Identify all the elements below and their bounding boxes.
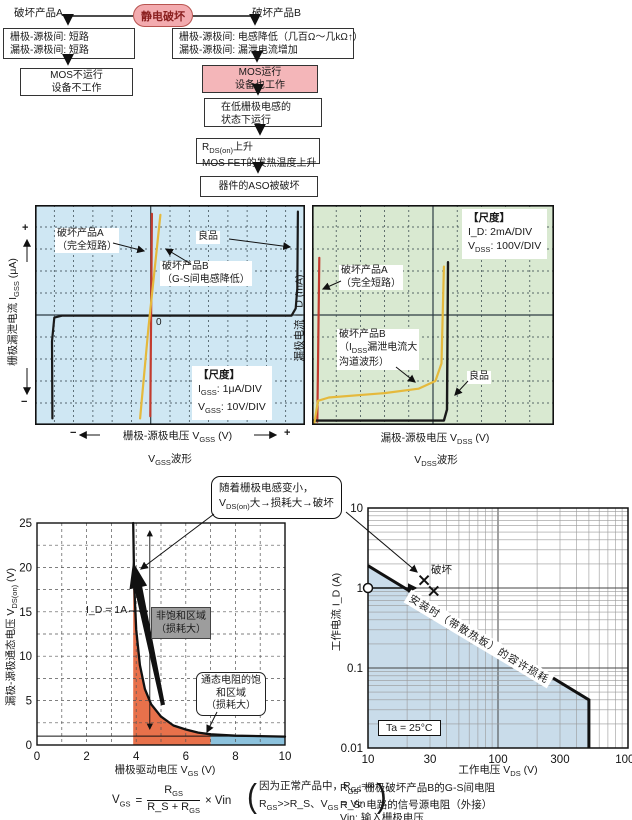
svg-text:0.01: 0.01 — [341, 743, 363, 755]
flow-box-mos-running: MOS运行 设备也工作 — [202, 65, 318, 93]
sat-line3: （损耗大） — [201, 700, 261, 713]
flow-box-rds-rise: RDS(on)上升 MOS FET的发热温度上升 — [196, 138, 320, 164]
vdson-saturation-region-label: 通态电阻的饱 和区域 （损耗大） — [196, 672, 266, 716]
aso-y-axis-label: 工作电流 I_D (A) — [329, 573, 344, 651]
svg-text:10: 10 — [362, 754, 375, 765]
vdss-prod-b-line1: 破坏产品B — [339, 329, 417, 342]
def-rs: R_S: 电路的信号源电阻（外接） — [340, 799, 495, 813]
vgss-label-product-a: 破坏产品A （完全短路） — [55, 228, 119, 253]
svg-text:10: 10 — [350, 503, 363, 515]
vdss-prod-b-line3: 沟道波形） — [339, 357, 417, 370]
vgss-label-product-b: 破坏产品B （G-S间电感降低） — [160, 261, 252, 286]
svg-text:1: 1 — [357, 583, 363, 595]
rds-line2: MOS FET的发热温度上升 — [202, 157, 319, 170]
vdss-scale-line1: I_D: 2mA/DIV — [468, 225, 541, 239]
aso-x-axis-label: 工作电压 VDS (V) — [428, 762, 568, 778]
callout-line2: VDS(on)大→损耗大→破坏 — [219, 496, 334, 515]
svg-text:5: 5 — [26, 696, 32, 708]
unsat-line2: （损耗大） — [156, 623, 206, 636]
vdson-vs-vgs-chart: 02468100510152025 — [8, 515, 300, 765]
lowl-line2: 状态下运行 — [221, 114, 321, 127]
flow-esd-damage-node: 静电破坏 — [133, 4, 193, 27]
svg-text:0.1: 0.1 — [347, 663, 363, 675]
def-rgs: RGS: 栅极破坏产品B的G-S间电阻 — [340, 782, 495, 799]
unsat-line1: 非饱和区域 — [156, 610, 206, 623]
flow-label-product-a: 破坏产品A — [14, 5, 63, 20]
flow-box-a-line2: 漏极-源极间: 短路 — [10, 44, 134, 57]
flow-box-low-inductance: 在低栅极电感的 状态下运行 — [204, 98, 322, 127]
vgss-y-axis-label: 栅极漏泄电流 IGSS (μA) — [5, 258, 21, 366]
flow-box-b-line1: 栅极-源极间: 电感降低（几百Ω～几kΩ↑） — [179, 31, 353, 44]
vdson-unsaturated-region-label: 非饱和区域 （损耗大） — [151, 607, 211, 639]
vgss-scale-box: 【尺度】 IGSS: 1μA/DIV VGSS: 10V/DIV — [192, 366, 272, 420]
sat-line2: 和区域 — [201, 688, 261, 701]
flow-label-product-b: 破坏产品B — [252, 5, 301, 20]
svg-text:0: 0 — [34, 751, 40, 763]
vgss-scale-title: 【尺度】 — [198, 368, 266, 382]
svg-text:25: 25 — [19, 518, 32, 530]
mos-a-line1: MOS不运行 — [21, 69, 132, 82]
vgs-formula: VGS = RGS R_S + RGS × Vin — [112, 784, 231, 817]
vgss-scale-line2: VGSS: 10V/DIV — [198, 400, 266, 418]
vdss-scale-box: 【尺度】 I_D: 2mA/DIV VDSS: 100V/DIV — [462, 209, 547, 259]
flow-box-aso-damaged: 器件的ASO被破坏 — [200, 176, 318, 197]
vdss-scale-title: 【尺度】 — [468, 211, 541, 225]
gate-inductance-callout: 随着栅极电感变小， VDS(on)大→损耗大→破坏 — [211, 476, 342, 519]
vgss-waveform-title: VGSS波形 — [118, 451, 222, 467]
vdson-x-axis-label: 栅极驱动电压 VGS (V) — [80, 762, 250, 778]
connector-trigger-to-b — [193, 16, 255, 24]
svg-text:20: 20 — [19, 562, 32, 574]
flow-box-product-a-symptoms: 栅极-源极间: 短路 漏极-源极间: 短路 — [3, 28, 135, 59]
vgss-label-good: 良品 — [196, 231, 220, 244]
vdss-prod-b-line2: （IDSS漏泄电流大 — [339, 342, 417, 358]
vgss-scale-line1: IGSS: 1μA/DIV — [198, 382, 266, 400]
aso-line: 器件的ASO被破坏 — [201, 180, 317, 193]
callout-line1: 随着栅极电感变小， — [219, 481, 334, 496]
svg-text:1000: 1000 — [615, 754, 632, 765]
vdss-label-product-a: 破坏产品A （完全短路） — [339, 265, 403, 290]
symbol-definitions: RGS: 栅极破坏产品B的G-S间电阻 R_S: 电路的信号源电阻（外接） Vi… — [340, 782, 495, 820]
flow-box-b-line2: 漏极-源极间: 漏泄电流增加 — [179, 44, 353, 57]
vdss-prod-a-line1: 破坏产品A — [341, 265, 401, 278]
lowl-line1: 在低栅极电感的 — [221, 101, 321, 114]
flow-box-product-b-symptoms: 栅极-源极间: 电感降低（几百Ω～几kΩ↑） 漏极-源极间: 漏泄电流增加 — [172, 28, 354, 59]
formula-numerator: RGS — [164, 784, 183, 800]
vdson-curve-label: I_D = 1A — [86, 604, 127, 616]
vdson-y-axis-label: 漏极-源极通态电压 VDS(on) (V) — [3, 568, 19, 706]
vgss-x-axis-label: 栅极-源极电压 VGSS (V) — [100, 428, 255, 444]
vgss-prod-b-line2: （G-S间电感降低） — [162, 274, 250, 287]
formula-fraction: RGS R_S + RGS — [147, 784, 200, 817]
vgss-y-plus-sign: + — [22, 222, 28, 234]
connector-trigger-to-a — [68, 16, 133, 24]
rds-line1: RDS(on)上升 — [202, 141, 319, 157]
svg-text:15: 15 — [19, 607, 32, 619]
formula-rhs: × Vin — [205, 795, 231, 807]
sat-line1: 通态电阻的饱 — [201, 675, 261, 688]
aso-damage-label: 破坏 — [431, 562, 452, 577]
vdss-prod-a-line2: （完全短路） — [341, 278, 401, 291]
vgss-y-minus-sign: − — [21, 396, 27, 408]
formula-lhs: VGS — [112, 794, 131, 808]
formula-equals: = — [136, 795, 143, 807]
note-open-paren: ( — [247, 780, 257, 814]
aso-ta-label: Ta = 25°C — [378, 720, 441, 736]
mos-b-line2: 设备也工作 — [203, 79, 317, 92]
vgss-prod-a-line1: 破坏产品A — [57, 228, 117, 241]
flow-box-a-line1: 栅极-源极间: 短路 — [10, 31, 134, 44]
formula-denominator: R_S + RGS — [147, 800, 200, 817]
vdss-label-product-b: 破坏产品B （IDSS漏泄电流大 沟道波形） — [337, 329, 419, 370]
vdss-scale-line2: VDSS: 100V/DIV — [468, 239, 541, 257]
vgss-x-plus-sign: + — [284, 427, 290, 439]
vgss-prod-b-line1: 破坏产品B — [162, 261, 250, 274]
svg-text:0: 0 — [26, 740, 32, 752]
svg-text:10: 10 — [279, 751, 292, 763]
def-vin: Vin: 输入栅极电压 — [340, 812, 495, 820]
vdss-waveform-title: VDSS波形 — [384, 452, 488, 468]
vdss-x-axis-label: 漏极-源极电压 VDSS (V) — [350, 430, 520, 446]
vdss-y-axis-label: 漏极电流 I_D (mA) — [292, 275, 307, 362]
mos-a-line2: 设备不工作 — [21, 82, 132, 95]
flow-box-mos-not-running: MOS不运行 设备不工作 — [20, 68, 133, 96]
mos-b-line1: MOS运行 — [203, 66, 317, 79]
vgss-zero-label: 0 — [156, 317, 162, 328]
esd-damage-figure: 破坏产品A 静电破坏 破坏产品B 栅极-源极间: 短路 漏极-源极间: 短路 栅… — [0, 0, 632, 820]
svg-text:10: 10 — [19, 651, 32, 663]
vgss-x-minus-sign: − — [70, 427, 76, 439]
vgss-prod-a-line2: （完全短路） — [57, 241, 117, 254]
vdss-label-good: 良品 — [467, 371, 491, 384]
